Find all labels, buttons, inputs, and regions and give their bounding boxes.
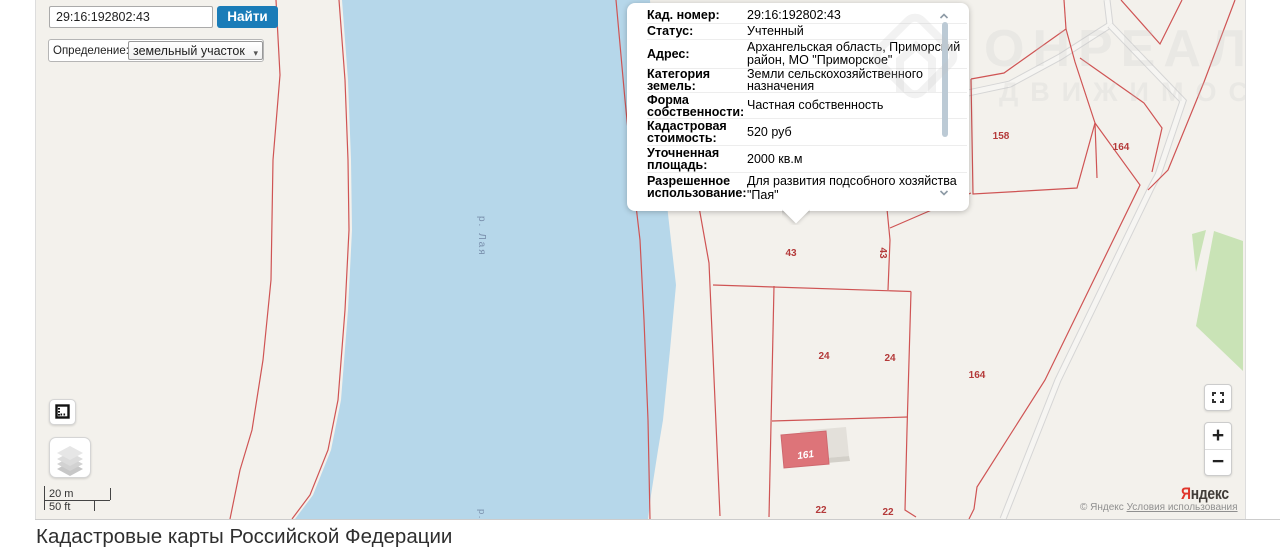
- svg-text:24: 24: [884, 353, 896, 364]
- svg-text:158: 158: [993, 131, 1010, 142]
- svg-text:43: 43: [877, 247, 888, 259]
- svg-text:164: 164: [969, 370, 986, 381]
- svg-text:20 m: 20 m: [49, 488, 73, 500]
- svg-text:24: 24: [818, 351, 830, 362]
- svg-text:43: 43: [785, 248, 797, 259]
- svg-text:р. Лая: р. Лая: [476, 509, 487, 545]
- svg-text:22: 22: [815, 505, 827, 516]
- svg-text:22: 22: [882, 507, 894, 518]
- svg-text:р. Лая: р. Лая: [476, 216, 487, 257]
- svg-text:50 ft: 50 ft: [49, 501, 70, 513]
- svg-text:164: 164: [1113, 142, 1130, 153]
